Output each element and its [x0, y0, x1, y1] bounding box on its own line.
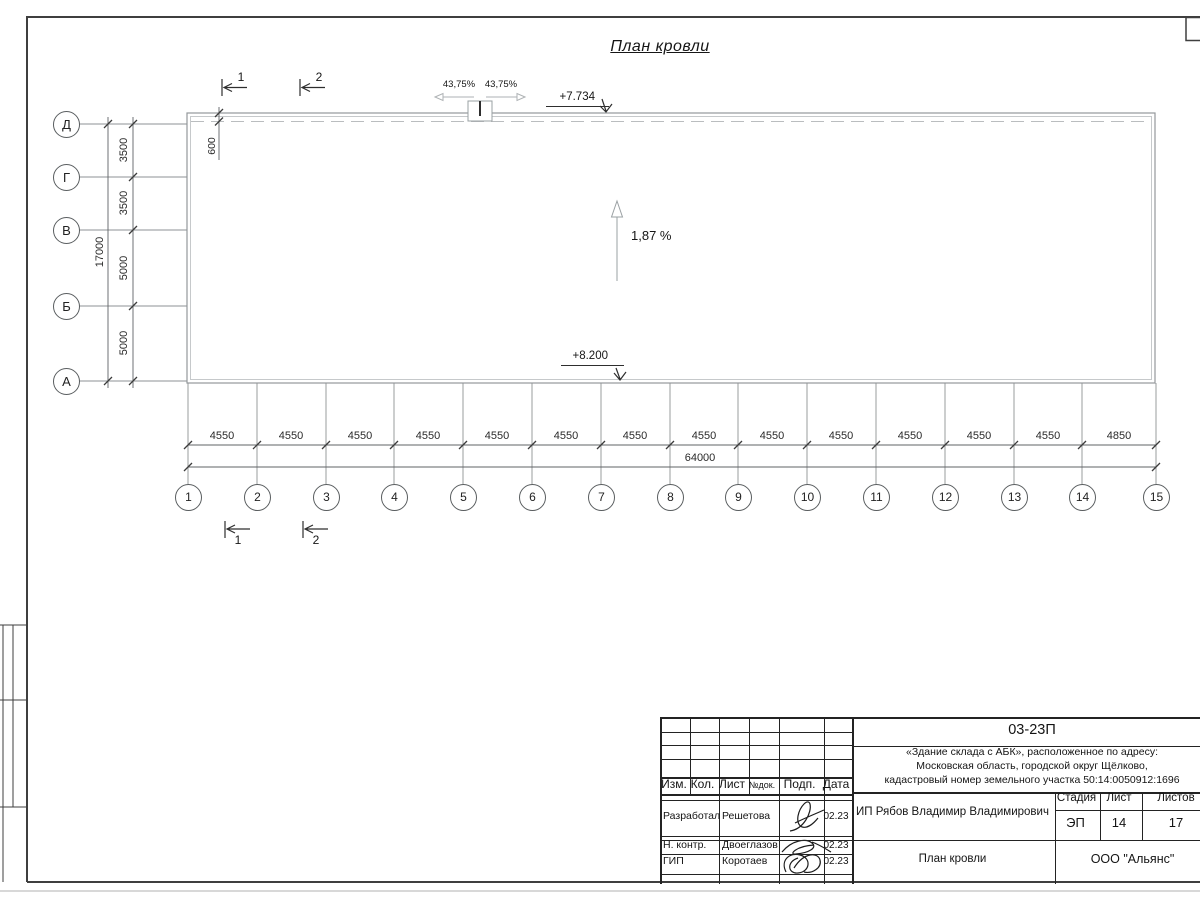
col-header-izm: Изм. [660, 777, 688, 791]
dim-label: 5000 [118, 331, 130, 355]
axis-bubble-d: Д [53, 111, 80, 138]
elevation-bottom-label: +8.200 [553, 350, 608, 362]
grid-bubble-8: 8 [657, 484, 684, 511]
signature-name: Решетова [722, 810, 770, 822]
titleblock-line [662, 759, 852, 760]
dim-parapet-offset: 600 [206, 137, 218, 155]
grid-bubble-15: 15 [1143, 484, 1170, 511]
dim-label: 4550 [811, 430, 871, 442]
axis-bubble-b: Б [53, 293, 80, 320]
section-mark-label: 2 [314, 70, 324, 84]
dim-label: 4550 [467, 430, 527, 442]
dim-label: 4550 [880, 430, 940, 442]
roof-outline [187, 113, 1155, 383]
grid-bubble-3: 3 [313, 484, 340, 511]
grid-bubble-7: 7 [588, 484, 615, 511]
dim-label: 4850 [1089, 430, 1149, 442]
titleblock-line [662, 732, 852, 733]
page-title: План кровли [560, 38, 760, 56]
grid-bubble-9: 9 [725, 484, 752, 511]
axis-bubble-g: Г [53, 164, 80, 191]
elevation-marks [546, 99, 626, 380]
titleblock-line [662, 836, 852, 837]
project-address-line: Московская область, городской округ Щёлк… [852, 760, 1200, 774]
dim-label: 4550 [261, 430, 321, 442]
grid-bubble-4: 4 [381, 484, 408, 511]
sheets-label: Листов [1140, 792, 1200, 804]
dim-label: 4550 [605, 430, 665, 442]
signature-date: 02.23 [822, 840, 850, 851]
drawing-name: План кровли [852, 853, 1053, 865]
col-header-kol: Кол. [688, 777, 717, 791]
grid-bubble-12: 12 [932, 484, 959, 511]
project-address-line: «Здание склада с АБК», расположенное по … [852, 746, 1200, 760]
dimension-ticks [104, 109, 1160, 471]
grid-bubble-1: 1 [175, 484, 202, 511]
signature-date: 02.23 [822, 856, 850, 867]
company-name: ООО "Альянс" [1053, 852, 1200, 866]
dimension-lines [108, 107, 1156, 467]
dim-label: 4550 [674, 430, 734, 442]
grid-bubble-6: 6 [519, 484, 546, 511]
titleblock-line [719, 719, 720, 884]
sheet-value: 14 [1098, 815, 1140, 830]
col-header-data: Дата [822, 777, 850, 791]
col-header-list: Лист [717, 777, 747, 791]
signature-name: Коротаев [722, 855, 767, 867]
grid-bubble-10: 10 [794, 484, 821, 511]
dim-total-vertical: 17000 [94, 237, 106, 268]
dim-label: 3500 [118, 138, 130, 162]
left-stamp-lines [0, 625, 27, 882]
funnel-slope-right-label: 43,75% [479, 79, 523, 90]
dim-total-horizontal: 64000 [660, 452, 740, 464]
drawing-sheet: План кровли Д Г В Б А 3500 3500 5000 500… [0, 0, 1200, 900]
titleblock-line [662, 874, 852, 875]
dim-label: 4550 [330, 430, 390, 442]
signature-name: Двоеглазов [722, 839, 778, 851]
dim-label: 4550 [742, 430, 802, 442]
titleblock-line [662, 794, 852, 796]
slope-arrow [612, 201, 623, 281]
grid-bubble-11: 11 [863, 484, 890, 511]
dim-label: 3500 [118, 191, 130, 215]
titleblock-line [1055, 810, 1200, 811]
col-header-podp: Подп. [777, 777, 822, 791]
titleblock-line [852, 840, 1200, 841]
axis-bubble-a: А [53, 368, 80, 395]
sheets-value: 17 [1140, 815, 1200, 830]
slope-label: 1,87 % [631, 228, 671, 243]
axis-bubble-v: В [53, 217, 80, 244]
dim-label: 4550 [192, 430, 252, 442]
signature-role: Н. контр. [663, 839, 706, 851]
signature-role: ГИП [663, 855, 684, 867]
dim-label: 5000 [118, 256, 130, 280]
titleblock-line [662, 745, 852, 746]
titleblock-line [1055, 792, 1056, 884]
stage-label: Стадия [1055, 792, 1098, 804]
signature-date: 02.23 [822, 811, 850, 822]
titleblock-line [662, 800, 852, 801]
dim-label: 4550 [1018, 430, 1078, 442]
section-mark-label: 1 [233, 533, 243, 547]
doc-number: 03-23П [852, 722, 1200, 738]
section-mark-label: 2 [311, 533, 321, 547]
project-description: «Здание склада с АБК», расположенное по … [852, 746, 1200, 787]
grid-bubble-14: 14 [1069, 484, 1096, 511]
elevation-top-label: +7.734 [540, 91, 595, 103]
dim-label: 4550 [398, 430, 458, 442]
grid-bubble-13: 13 [1001, 484, 1028, 511]
titleblock-line [779, 719, 780, 884]
funnel-slope-left-label: 43,75% [437, 79, 481, 90]
sheet-label: Лист [1098, 792, 1140, 804]
dim-label: 4550 [536, 430, 596, 442]
col-header-ndok: №док. [747, 780, 777, 790]
grid-bubble-2: 2 [244, 484, 271, 511]
stage-value: ЭП [1053, 815, 1098, 830]
section-mark-label: 1 [236, 70, 246, 84]
dim-label: 4550 [949, 430, 1009, 442]
client-name: ИП Рябов Владимир Владимирович [852, 806, 1053, 818]
grid-bubble-5: 5 [450, 484, 477, 511]
section-cut-marks [222, 79, 328, 538]
signature-role: Разработал [663, 810, 720, 822]
project-address-line: кадастровый номер земельного участка 50:… [852, 774, 1200, 788]
